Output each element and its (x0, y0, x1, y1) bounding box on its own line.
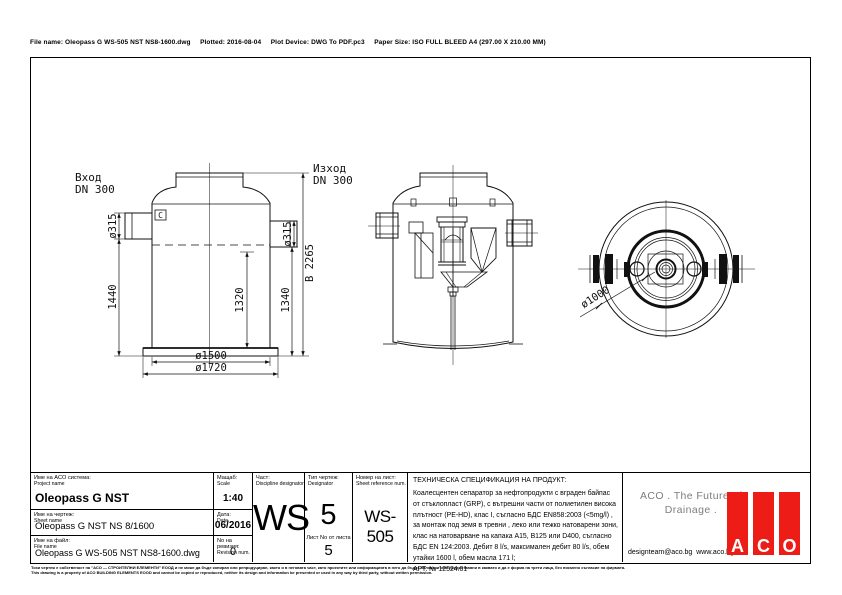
aco-logo-letter: A (727, 536, 748, 557)
aco-logo: A C O (727, 492, 800, 555)
cell-drawing-type: Тип чертеж: Designator 5 Лист No от лист… (305, 473, 353, 562)
aco-logo-letter: O (779, 536, 800, 557)
drawing-type-label: Тип чертеж: Designator (308, 475, 339, 487)
section-marker: C (158, 211, 163, 220)
footer-disclaimer: Този чертеж е собственост на "АСО — СТРО… (31, 566, 625, 576)
cell-spec: ТЕХНИЧЕСКА СПЕЦИФИКАЦИЯ НА ПРОДУКТ: Коал… (408, 473, 623, 562)
discipline-label-en: Discipline designator (256, 481, 304, 487)
cell-file-name: Име на файл: File name Oleopass G WS-505… (31, 536, 214, 562)
dim-1320: 1320 (234, 287, 246, 312)
outlet-dn-label: DN 300 (313, 174, 353, 187)
front-view: Вход DN 300 Изход DN 300 C ø1500 ø1720 ø… (75, 162, 353, 378)
title-block: Име на ACO система: Project name Oleopas… (30, 472, 811, 564)
file-name-value: Oleopass G WS-505 NST NS8-1600.dwg (35, 548, 200, 558)
dim-1440: 1440 (107, 284, 119, 309)
discipline-label: Част: Discipline designator (256, 475, 304, 487)
date-value: 06/2016 (214, 520, 252, 531)
plot-page: File name: Oleopass G WS-505 NST NS8-160… (0, 0, 842, 595)
aco-logo-panel: C (753, 492, 774, 555)
dim-outlet-dia: ø315 (282, 221, 294, 246)
sheet-of-value: 5 (305, 542, 352, 559)
dim-inlet-dia: ø315 (107, 213, 119, 238)
spec-body: Коалесцентен сепаратор за нефтопродукти … (413, 489, 618, 565)
sheet-ref-label-en: Sheet reference num. (356, 481, 406, 487)
section-view (368, 165, 538, 365)
disclaimer-en: This drawing is a property of ACO BUILDI… (31, 571, 625, 576)
aco-logo-panel: A (727, 492, 748, 555)
cell-project-name: Име на ACO система: Project name Oleopas… (31, 473, 214, 510)
scale-label: Мащаб: Scale (217, 475, 237, 487)
cell-sheet-ref: Номер на лист: Sheet reference num. WS-5… (353, 473, 408, 562)
cell-brand: ACO . The Future of Drainage . designtea… (623, 473, 809, 562)
scale-value: 1:40 (214, 493, 252, 504)
brand-contacts: designteam@aco.bg www.aco.bg (628, 549, 734, 556)
cell-scale: Мащаб: Scale 1:40 (214, 473, 253, 510)
dim-1340: 1340 (280, 287, 292, 312)
project-name-label-en: Project name (34, 481, 91, 487)
cell-date: Дата: Date 06/2016 (214, 510, 253, 536)
cell-sheet-name: Име на чертеж: Sheet name Oleopass G NST… (31, 510, 214, 536)
inlet-dn-label: DN 300 (75, 183, 115, 196)
aco-logo-letter: C (753, 536, 774, 557)
sheet-ref-value: WS-505 (353, 507, 407, 547)
dim-total-height: В 2265 (304, 244, 316, 282)
dim-1500: ø1500 (195, 350, 227, 362)
discipline-value: WS (253, 497, 304, 539)
scale-label-en: Scale (217, 481, 237, 487)
sheet-name-value: Oleopass G NST NS 8/1600 (35, 521, 154, 532)
dim-1000: ø1000 (579, 284, 612, 311)
cell-revision: No на ревизия: Revision num. 0 (214, 536, 253, 562)
project-name-value: Oleopass G NST (35, 491, 129, 505)
spec-title: ТЕХНИЧЕСКА СПЕЦИФИКАЦИЯ НА ПРОДУКТ: (413, 477, 618, 484)
sheet-of-label: Лист No от листа (305, 535, 352, 541)
drawing-type-value: 5 (305, 499, 352, 532)
sheet-ref-label: Номер на лист: Sheet reference num. (356, 475, 406, 487)
drawing-type-label-en: Designator (308, 481, 339, 487)
project-name-label: Име на ACO система: Project name (34, 475, 91, 487)
revision-value: 0 (214, 546, 252, 558)
dim-1720: ø1720 (195, 362, 227, 374)
aco-logo-panel: O (779, 492, 800, 555)
cell-discipline: Част: Discipline designator WS (253, 473, 305, 562)
top-view: ø1000 (578, 200, 755, 338)
